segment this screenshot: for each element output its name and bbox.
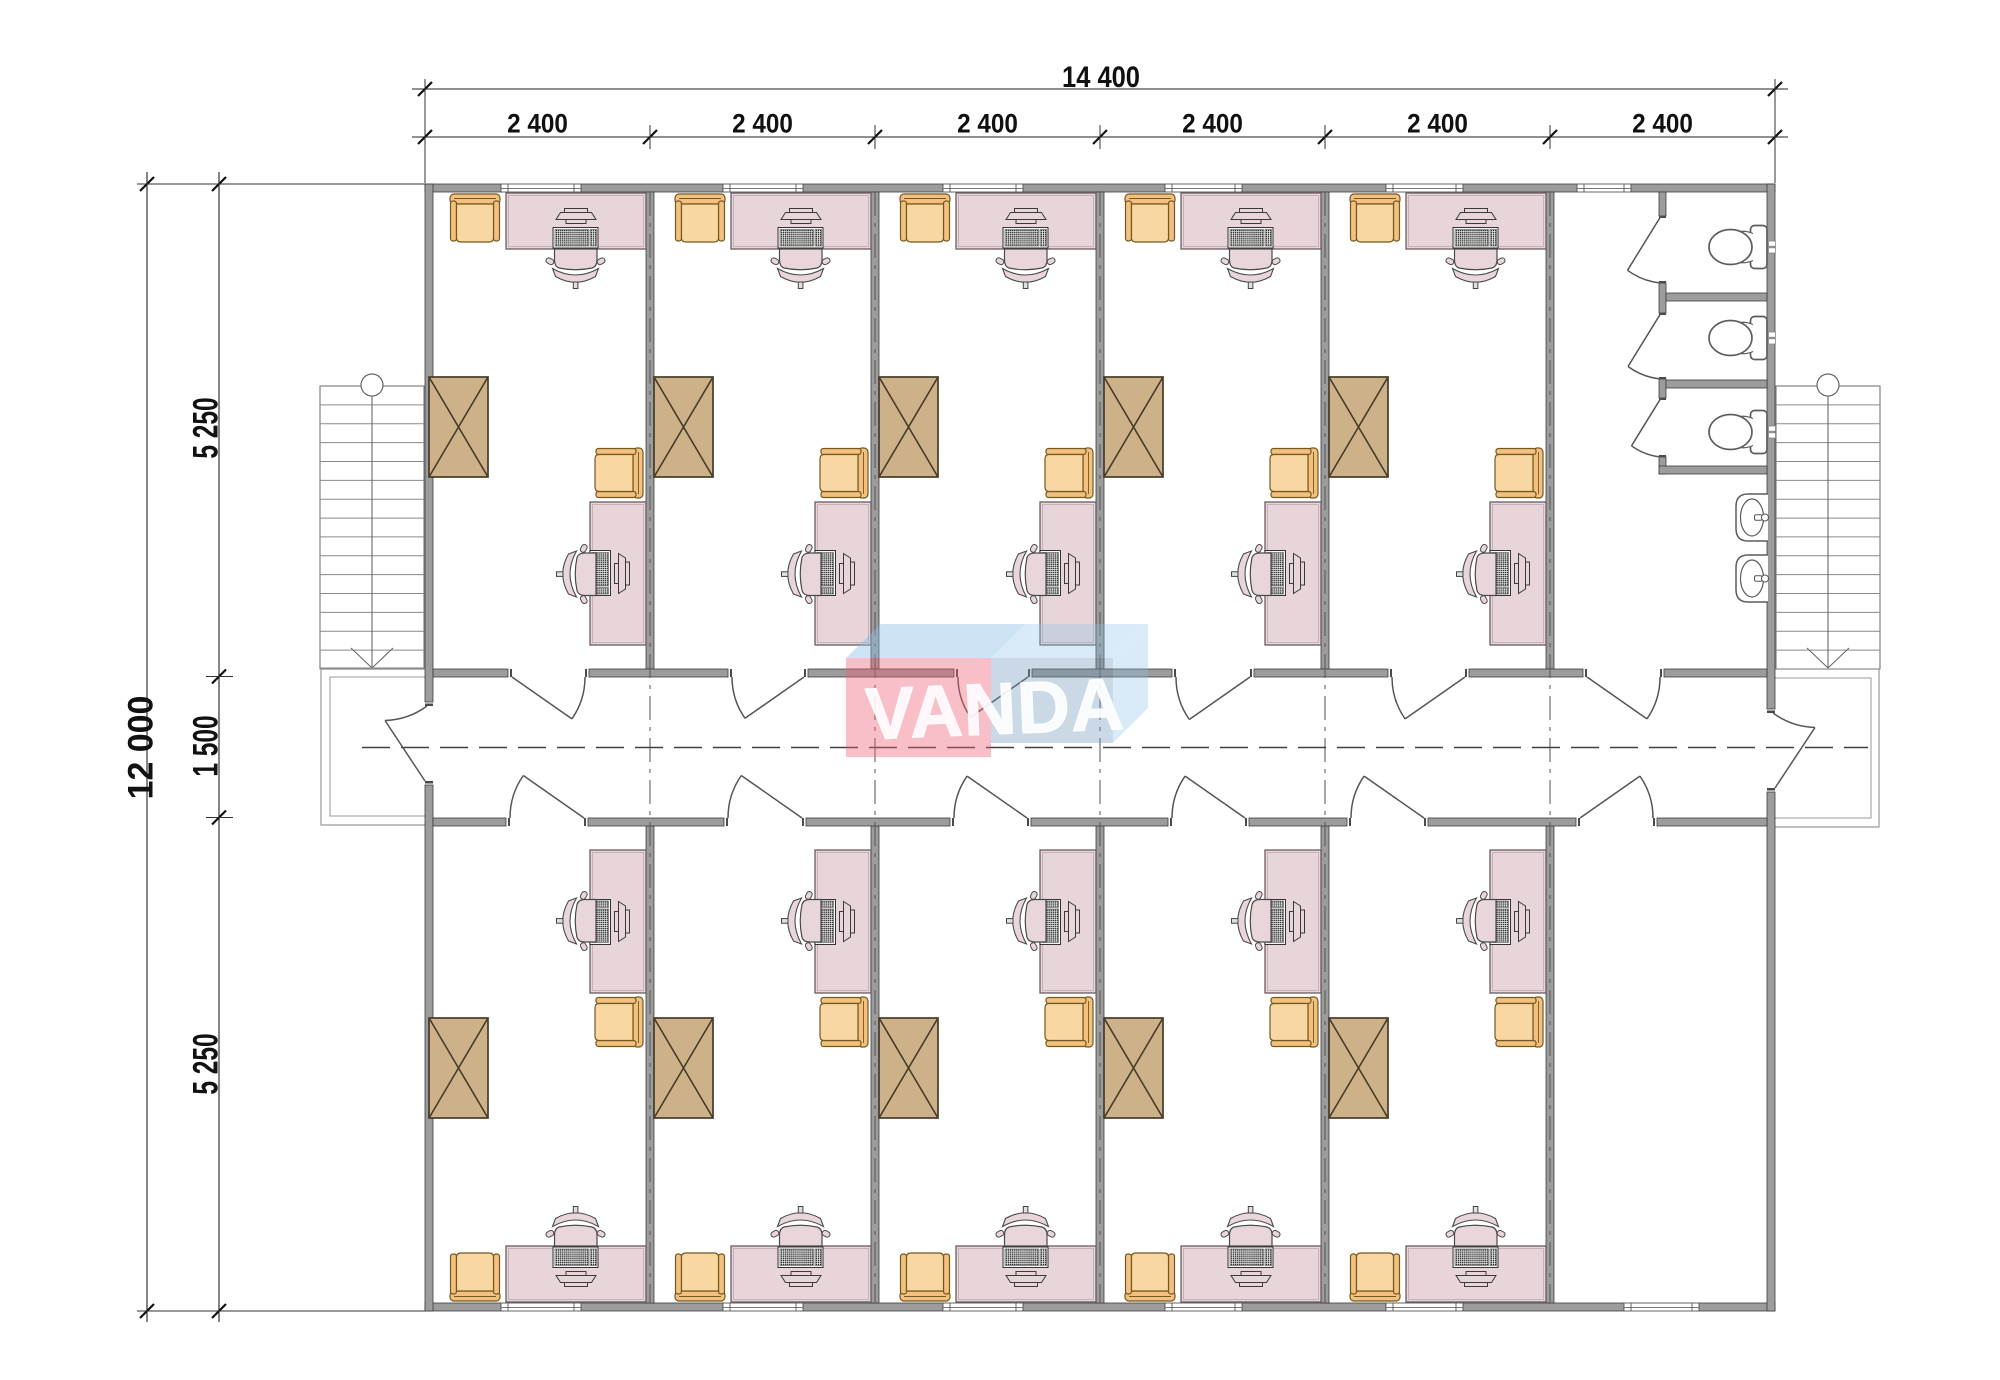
svg-text:2 400: 2 400 (1632, 109, 1693, 138)
svg-text:2 400: 2 400 (1407, 109, 1468, 138)
svg-text:5 250: 5 250 (187, 397, 225, 458)
svg-text:2 400: 2 400 (957, 109, 1018, 138)
svg-text:12 000: 12 000 (122, 696, 161, 800)
svg-text:VANDA: VANDA (864, 664, 1126, 755)
svg-text:2 400: 2 400 (1182, 109, 1243, 138)
svg-text:5 250: 5 250 (187, 1033, 225, 1094)
svg-text:2 400: 2 400 (732, 109, 793, 138)
svg-text:14 400: 14 400 (1062, 60, 1140, 93)
svg-text:2 400: 2 400 (507, 109, 568, 138)
svg-text:1 500: 1 500 (187, 715, 225, 776)
